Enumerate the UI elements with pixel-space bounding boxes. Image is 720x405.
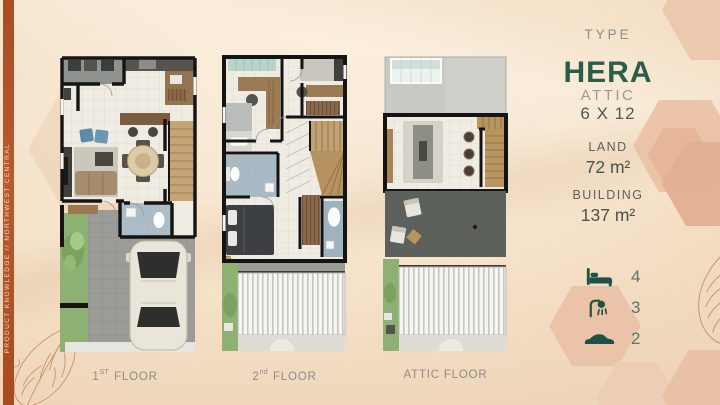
type-variant: ATTIC xyxy=(533,87,683,104)
caption-number: 2 xyxy=(252,371,259,383)
roof-below xyxy=(222,261,345,351)
caption-text: FLOOR xyxy=(273,371,317,383)
stairs xyxy=(169,121,195,201)
type-name: HERA xyxy=(533,56,683,90)
caption-text: FLOOR xyxy=(114,371,158,383)
car-icon xyxy=(583,333,615,346)
floor-plan-attic xyxy=(383,55,508,355)
land-value: 72 m² xyxy=(533,157,683,178)
spec-panel: TYPE HERA ATTIC 6 X 12 LAND 72 m² BUILDI… xyxy=(533,0,683,405)
entry-mat xyxy=(68,205,98,214)
caption-first-floor: 1STFLOOR xyxy=(50,369,200,383)
building-label: BUILDING xyxy=(533,188,683,202)
wardrobe xyxy=(302,195,320,245)
service-area xyxy=(62,58,124,84)
caption-attic-floor: ATTIC FLOOR xyxy=(383,369,508,381)
bathroom-1 xyxy=(224,155,278,197)
stairs xyxy=(477,115,506,187)
carport-count: 2 xyxy=(631,329,640,349)
bathroom-count: 3 xyxy=(631,298,640,318)
slide-canvas: PRODUCT KNOWLEDGE // NORTHWEST CENTRAL xyxy=(0,0,720,405)
roof-deck xyxy=(385,191,506,257)
caption-second-floor: 2ndFLOOR xyxy=(222,369,347,383)
land-label: LAND xyxy=(533,140,683,154)
bedroom-count: 4 xyxy=(631,267,640,287)
caption-ordinal: nd xyxy=(260,369,268,376)
feature-bedrooms: 4 xyxy=(583,266,720,287)
caption-ordinal: ST xyxy=(100,369,110,376)
caption-text: ATTIC FLOOR xyxy=(404,369,488,381)
garden-area xyxy=(60,213,88,352)
bed-icon xyxy=(583,266,615,287)
floor-plan-second xyxy=(222,55,347,355)
type-label: TYPE xyxy=(533,27,683,42)
concrete-roof xyxy=(385,57,506,115)
feature-bathrooms: 3 xyxy=(583,297,720,319)
roof-below xyxy=(383,259,506,351)
type-dimensions: 6 X 12 xyxy=(533,104,683,124)
car xyxy=(126,241,191,350)
accent-sidebar: PRODUCT KNOWLEDGE // NORTHWEST CENTRAL xyxy=(3,0,14,405)
feature-carports: 2 xyxy=(583,329,720,349)
floor-plan-first xyxy=(60,55,197,352)
building-value: 137 m² xyxy=(533,205,683,226)
caption-number: 1 xyxy=(92,371,99,383)
bathroom-2 xyxy=(322,201,345,257)
shower-icon xyxy=(583,297,615,319)
sidebar-vertical-text: PRODUCT KNOWLEDGE // NORTHWEST CENTRAL xyxy=(4,143,14,353)
bathroom xyxy=(120,203,172,237)
master-bedroom xyxy=(225,205,274,262)
